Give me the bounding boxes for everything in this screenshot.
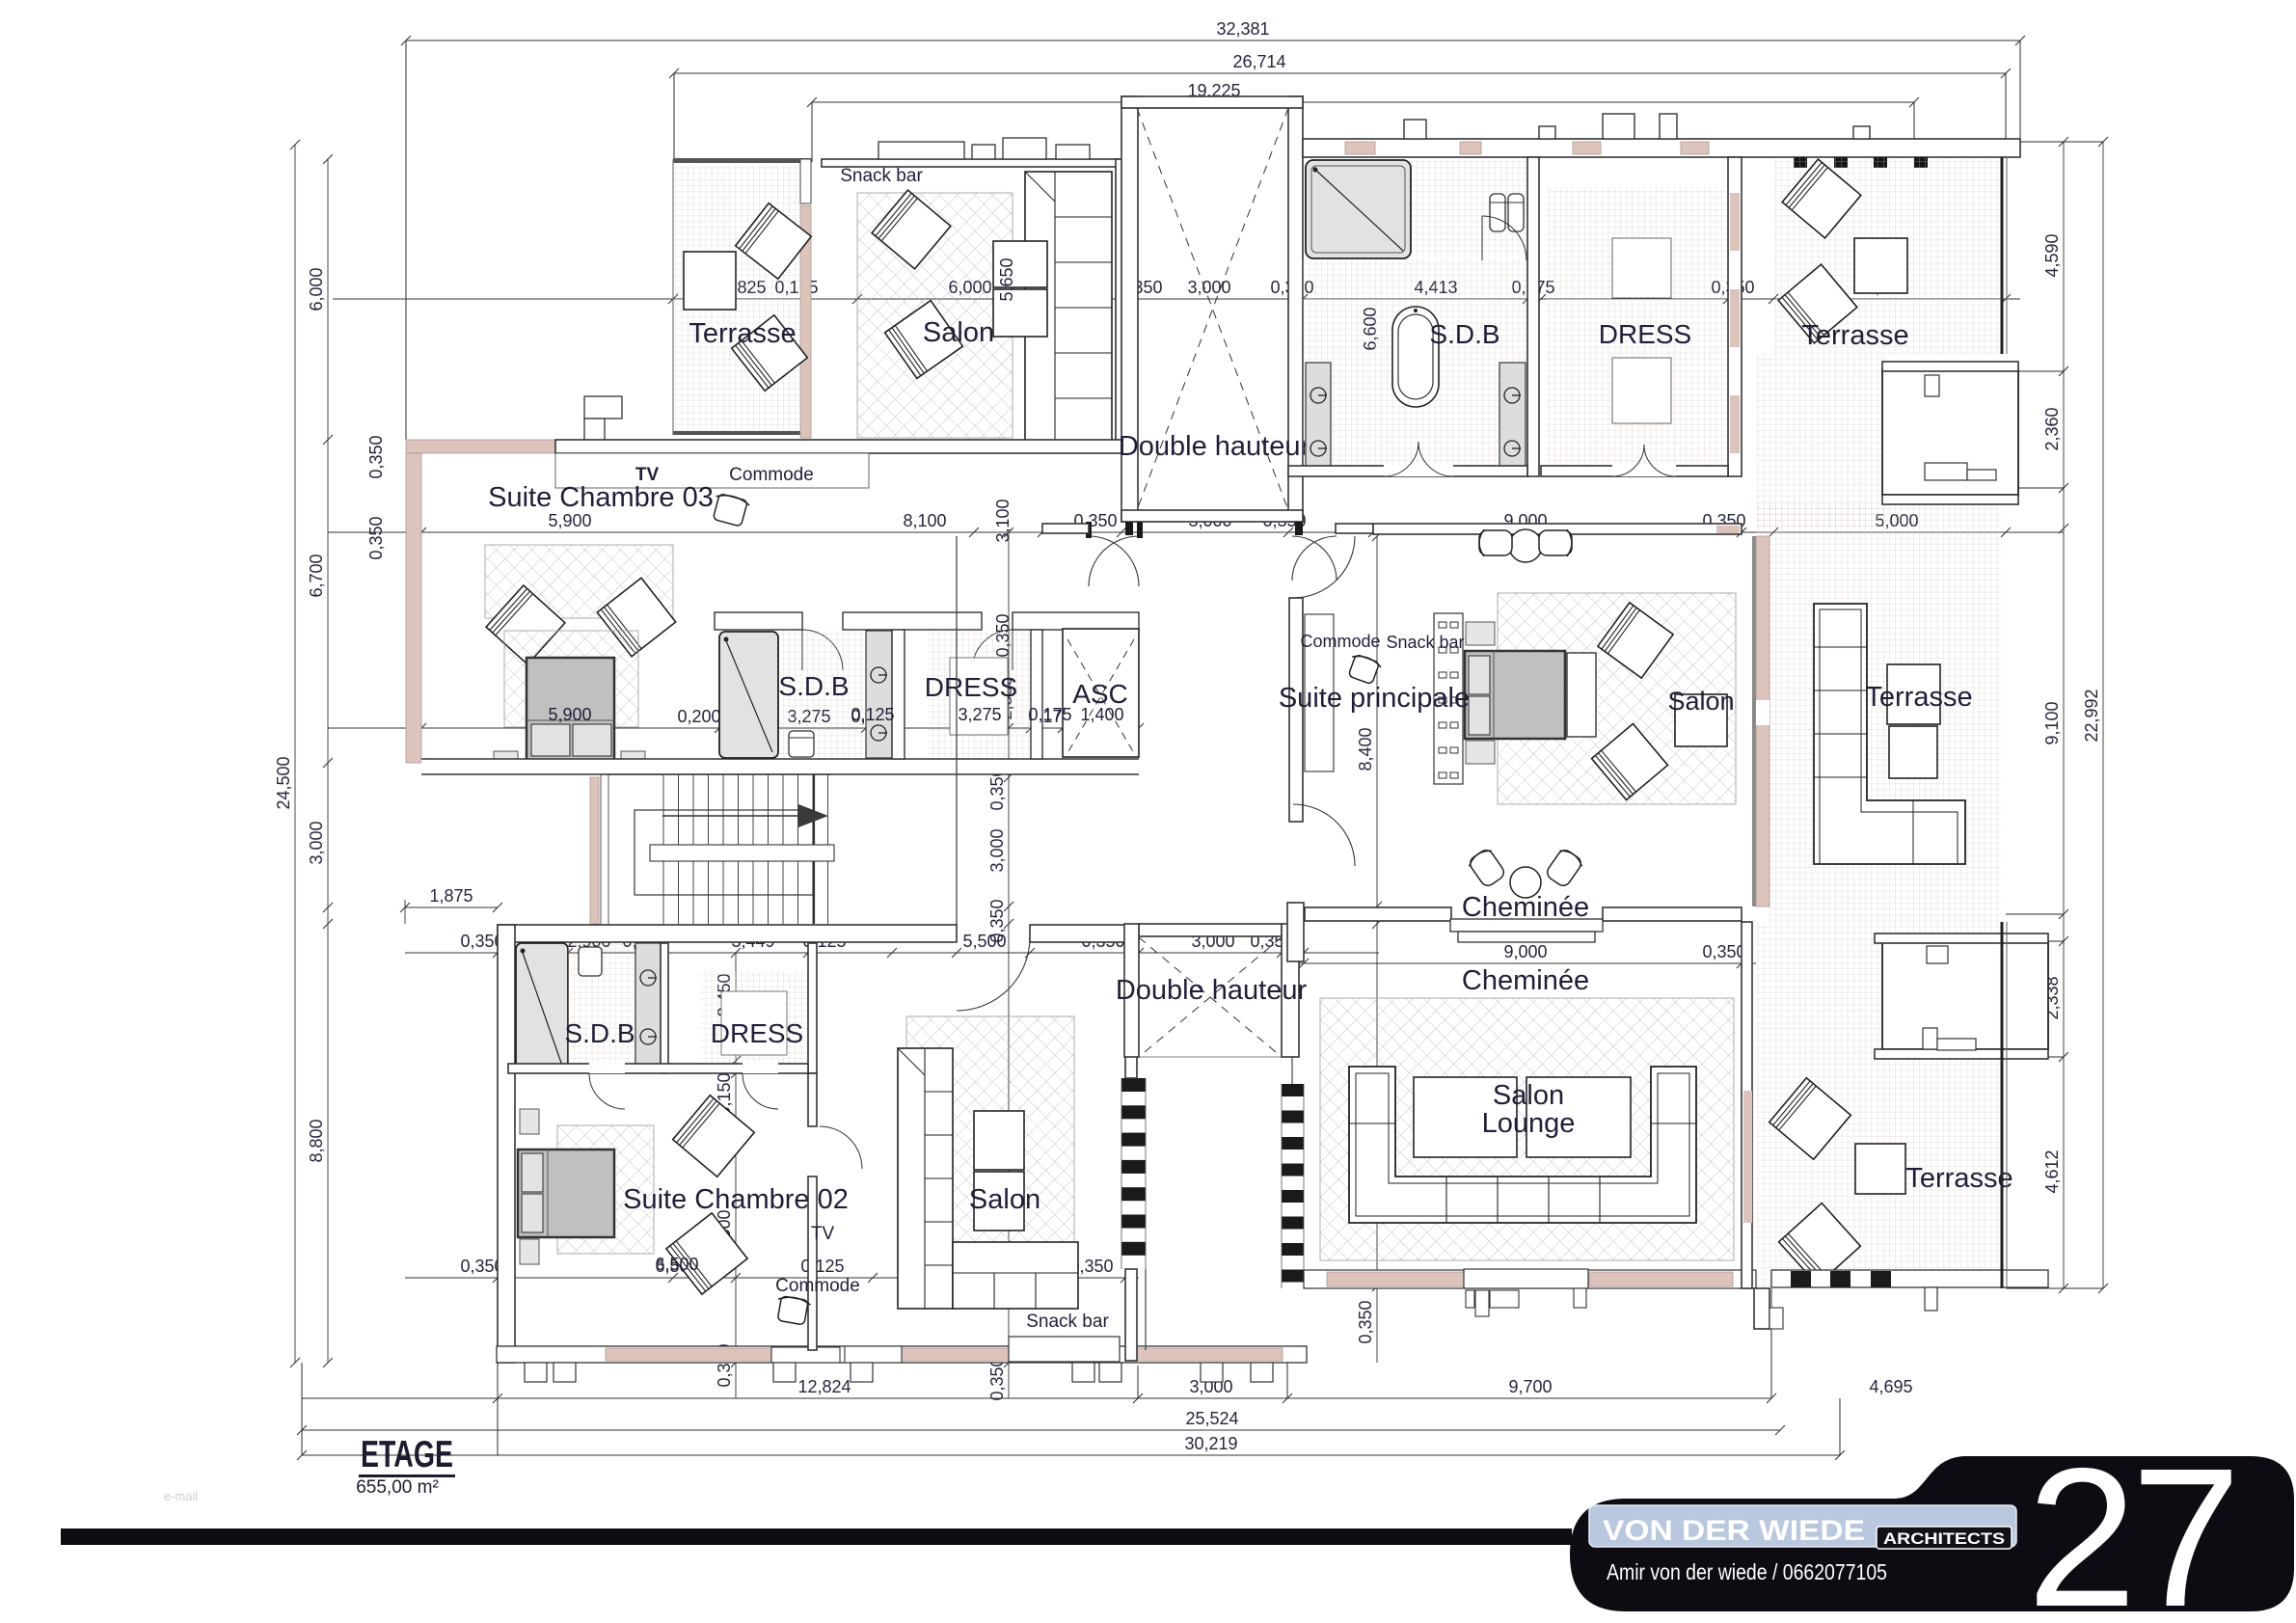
svg-text:Salon: Salon: [1493, 1080, 1564, 1111]
svg-text:S.D.B: S.D.B: [778, 671, 849, 701]
svg-text:0,125: 0,125: [851, 705, 894, 724]
svg-text:Amir von der wiede / 066207710: Amir von der wiede / 0662077105: [1607, 1559, 1887, 1584]
svg-text:8,100: 8,100: [903, 511, 946, 530]
svg-text:0,200: 0,200: [677, 707, 720, 726]
svg-text:8,800: 8,800: [307, 1119, 326, 1162]
svg-text:2,360: 2,360: [2042, 407, 2062, 450]
svg-text:24,500: 24,500: [274, 756, 293, 809]
svg-text:30,219: 30,219: [1184, 1434, 1237, 1453]
svg-text:5,650: 5,650: [997, 257, 1016, 301]
svg-text:4,612: 4,612: [2042, 1150, 2062, 1193]
svg-text:Terrasse: Terrasse: [1801, 320, 1908, 351]
svg-text:0,175: 0,175: [1028, 705, 1071, 724]
svg-text:Commode: Commode: [775, 1276, 860, 1296]
svg-text:9,000: 9,000: [1503, 942, 1547, 961]
svg-text:9,700: 9,700: [1508, 1377, 1552, 1396]
svg-text:Salon: Salon: [1667, 687, 1734, 716]
svg-text:Commode: Commode: [1300, 632, 1380, 651]
svg-text:9,100: 9,100: [2042, 701, 2062, 744]
svg-text:S.D.B: S.D.B: [564, 1018, 635, 1048]
svg-text:6,700: 6,700: [307, 554, 326, 597]
svg-text:0,350: 0,350: [987, 1357, 1007, 1400]
svg-text:12,824: 12,824: [797, 1377, 851, 1396]
svg-text:22,992: 22,992: [2082, 689, 2101, 742]
svg-text:Salon: Salon: [969, 1184, 1040, 1215]
svg-text:ETAGE: ETAGE: [361, 1434, 453, 1475]
svg-text:TV: TV: [811, 1224, 835, 1244]
svg-text:Snack bar: Snack bar: [1386, 633, 1464, 652]
svg-text:Terrasse: Terrasse: [1865, 682, 1972, 713]
svg-text:Terrasse: Terrasse: [689, 318, 796, 349]
svg-text:32,381: 32,381: [1216, 19, 1269, 39]
svg-text:DRESS: DRESS: [925, 672, 1017, 702]
svg-text:655,00 m²: 655,00 m²: [356, 1477, 439, 1498]
svg-text:0,350: 0,350: [1702, 942, 1745, 961]
svg-text:e-mail: e-mail: [164, 1489, 199, 1503]
svg-text:Suite principale: Suite principale: [1279, 683, 1470, 714]
svg-text:ARCHITECTS: ARCHITECTS: [1883, 1529, 2005, 1548]
svg-text:6,000: 6,000: [307, 267, 326, 311]
svg-text:3,000: 3,000: [1187, 278, 1230, 297]
svg-text:Cheminée: Cheminée: [1462, 892, 1589, 923]
svg-text:5,900: 5,900: [548, 705, 591, 724]
svg-text:4,695: 4,695: [1869, 1377, 1912, 1396]
svg-text:3,000: 3,000: [987, 828, 1007, 872]
svg-text:5,900: 5,900: [548, 511, 591, 530]
svg-text:Suite Chambre 03: Suite Chambre 03: [488, 482, 714, 513]
svg-text:Double hauteur: Double hauteur: [1116, 975, 1308, 1006]
svg-text:Salon: Salon: [923, 317, 994, 348]
svg-text:Double hauteur: Double hauteur: [1119, 431, 1310, 462]
svg-text:Cheminée: Cheminée: [1462, 965, 1589, 996]
svg-text:S.D.B: S.D.B: [1429, 319, 1499, 349]
svg-text:8,400: 8,400: [1356, 727, 1375, 771]
svg-text:5,500: 5,500: [962, 932, 1006, 951]
svg-text:Terrasse: Terrasse: [1905, 1163, 2012, 1194]
svg-text:6,500: 6,500: [655, 1255, 698, 1274]
svg-text:3,100: 3,100: [993, 499, 1013, 542]
svg-text:0,350: 0,350: [1356, 1300, 1375, 1343]
svg-text:25,524: 25,524: [1185, 1409, 1238, 1428]
svg-text:Lounge: Lounge: [1482, 1108, 1576, 1139]
svg-text:Snack bar: Snack bar: [1026, 1312, 1109, 1332]
svg-text:4,590: 4,590: [2042, 233, 2062, 277]
svg-text:Snack bar: Snack bar: [840, 166, 923, 186]
svg-text:26,714: 26,714: [1232, 52, 1285, 71]
svg-text:1,875: 1,875: [429, 886, 473, 906]
svg-text:3,000: 3,000: [307, 821, 326, 864]
svg-text:DRESS: DRESS: [1599, 319, 1691, 349]
svg-text:DRESS: DRESS: [711, 1018, 803, 1048]
svg-text:27: 27: [2027, 1427, 2235, 1623]
svg-text:0,350: 0,350: [366, 435, 386, 478]
svg-text:0,350: 0,350: [366, 516, 386, 559]
svg-text:1,400: 1,400: [1080, 705, 1123, 724]
svg-text:VON DER WIEDE: VON DER WIEDE: [1603, 1515, 1865, 1547]
svg-text:3,275: 3,275: [958, 705, 1001, 724]
svg-text:Commode: Commode: [729, 465, 814, 485]
